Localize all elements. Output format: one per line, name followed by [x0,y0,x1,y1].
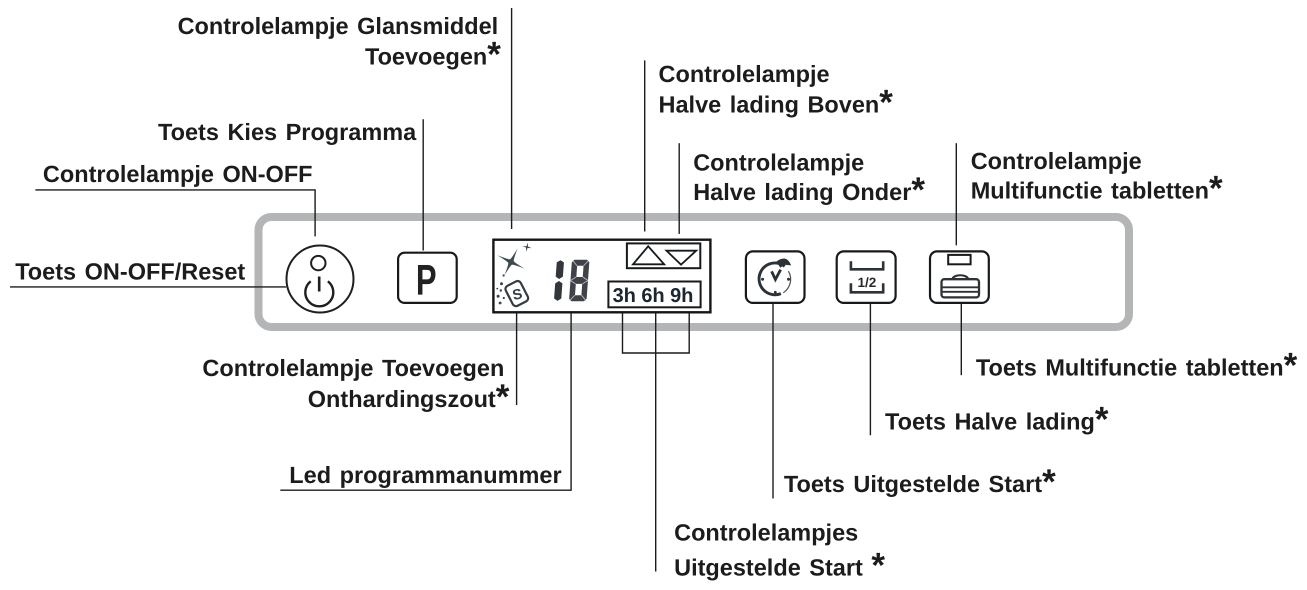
svg-text:Controlelampje: Controlelampje [693,149,864,175]
svg-text:Toets Kies Programma: Toets Kies Programma [158,119,417,145]
svg-text:Toets ON-OFF/Reset: Toets ON-OFF/Reset [15,258,245,284]
svg-text:Controlelampje ON-OFF: Controlelampje ON-OFF [43,161,313,187]
svg-text:Controlelampje Glansmiddel: Controlelampje Glansmiddel [178,13,499,39]
svg-text:Controlelampje: Controlelampje [659,61,830,87]
svg-text:Controlelampjes: Controlelampjes [674,520,858,546]
svg-text:Led programmanummer: Led programmanummer [289,462,561,488]
svg-text:Controlelampje: Controlelampje [971,148,1142,174]
svg-text:Controlelampje Toevoegen: Controlelampje Toevoegen [202,355,504,381]
